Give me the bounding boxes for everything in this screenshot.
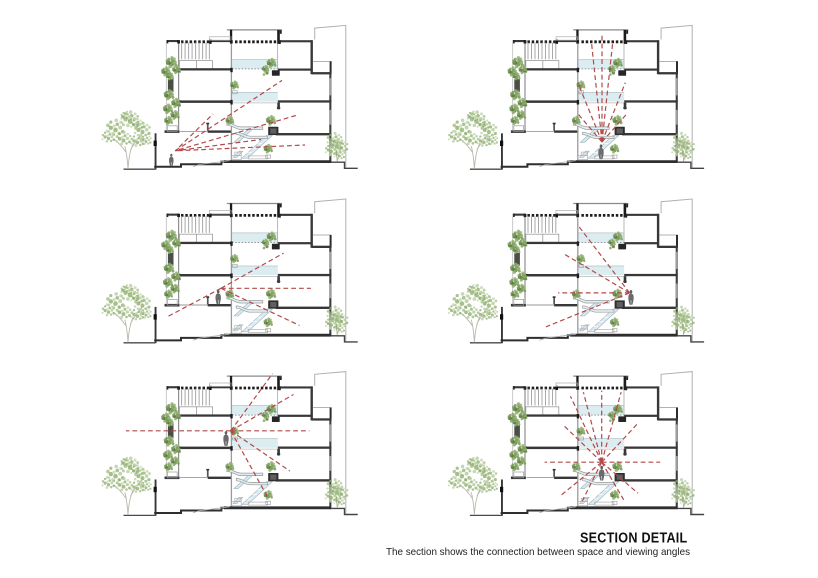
svg-text:The section shows the connecti: The section shows the connection between… — [386, 547, 690, 558]
svg-text:SECTION DETAIL: SECTION DETAIL — [580, 528, 688, 545]
